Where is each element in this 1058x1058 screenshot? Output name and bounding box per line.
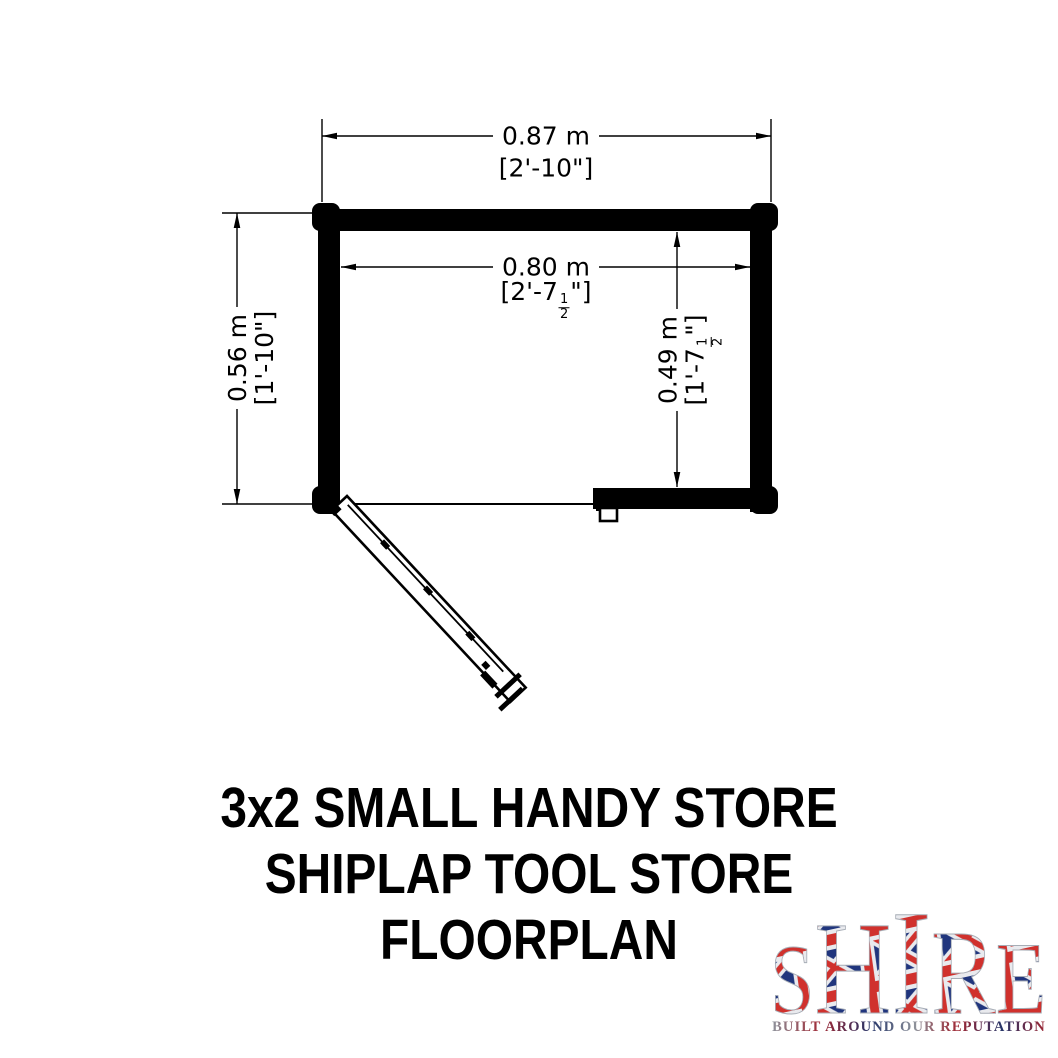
- fraction-denominator: 2: [711, 337, 726, 347]
- corner-post-bottom-right: [750, 486, 778, 514]
- title-line-1: 3x2 SMALL HANDY STORE: [85, 775, 974, 841]
- right-wall: [750, 209, 772, 512]
- arrowhead-up: [674, 232, 681, 247]
- shire-logo: SHIRE BUILT AROUND OUR REPUTATION: [762, 900, 1056, 1056]
- latch-keeper: [600, 508, 617, 521]
- imperial-pre: [2'-7: [500, 277, 557, 306]
- arrowhead-right: [735, 264, 750, 271]
- fraction: 12: [559, 293, 569, 322]
- arrowhead-down: [674, 472, 681, 487]
- dim-width-outer-metric: 0.87 m: [493, 123, 599, 150]
- arrowhead-left: [322, 133, 337, 140]
- fraction: 12: [697, 337, 726, 347]
- door-leaf: [319, 490, 530, 712]
- corner-post-top-right: [750, 203, 778, 231]
- left-wall: [318, 209, 340, 512]
- title-line-2: SHIPLAP TOOL STORE: [85, 841, 974, 907]
- dim-height-inner-metric: 0.49 m: [655, 309, 682, 411]
- dim-height-outer-imperial: [1'-10"]: [251, 307, 278, 409]
- arrowhead-right: [756, 133, 771, 140]
- top-wall: [320, 209, 772, 231]
- logo-tagline: BUILT AROUND OUR REPUTATION: [772, 1019, 1046, 1035]
- dim-height-outer-metric: 0.56 m: [224, 307, 251, 409]
- dim-height-inner-imperial: [1'-712"]: [682, 309, 726, 411]
- dim-width-inner-imperial: [2'-712"]: [500, 278, 591, 322]
- bottom-right-wall: [593, 488, 772, 509]
- fraction-numerator: 1: [697, 338, 711, 346]
- arrowhead-left: [341, 264, 356, 271]
- imperial-post: "]: [570, 277, 591, 306]
- door-panel: [332, 496, 526, 702]
- imperial-post: "]: [681, 315, 710, 336]
- floorplan-page: 0.87 m [2'-10"] 0.80 m [2'-712"] 0.56 m …: [0, 0, 1058, 1058]
- dim-height-outer-label: 0.56 m [1'-10"]: [224, 307, 278, 409]
- arrowhead-down: [234, 489, 241, 504]
- imperial-pre: [1'-7: [681, 348, 710, 405]
- fraction-denominator: 2: [559, 307, 569, 322]
- fraction-numerator: 1: [560, 293, 568, 307]
- arrowhead-up: [234, 213, 241, 228]
- dim-height-inner-label: 0.49 m [1'-712"]: [655, 309, 726, 411]
- dim-width-outer-imperial: [2'-10"]: [499, 155, 594, 182]
- corner-post-top-left: [312, 203, 340, 231]
